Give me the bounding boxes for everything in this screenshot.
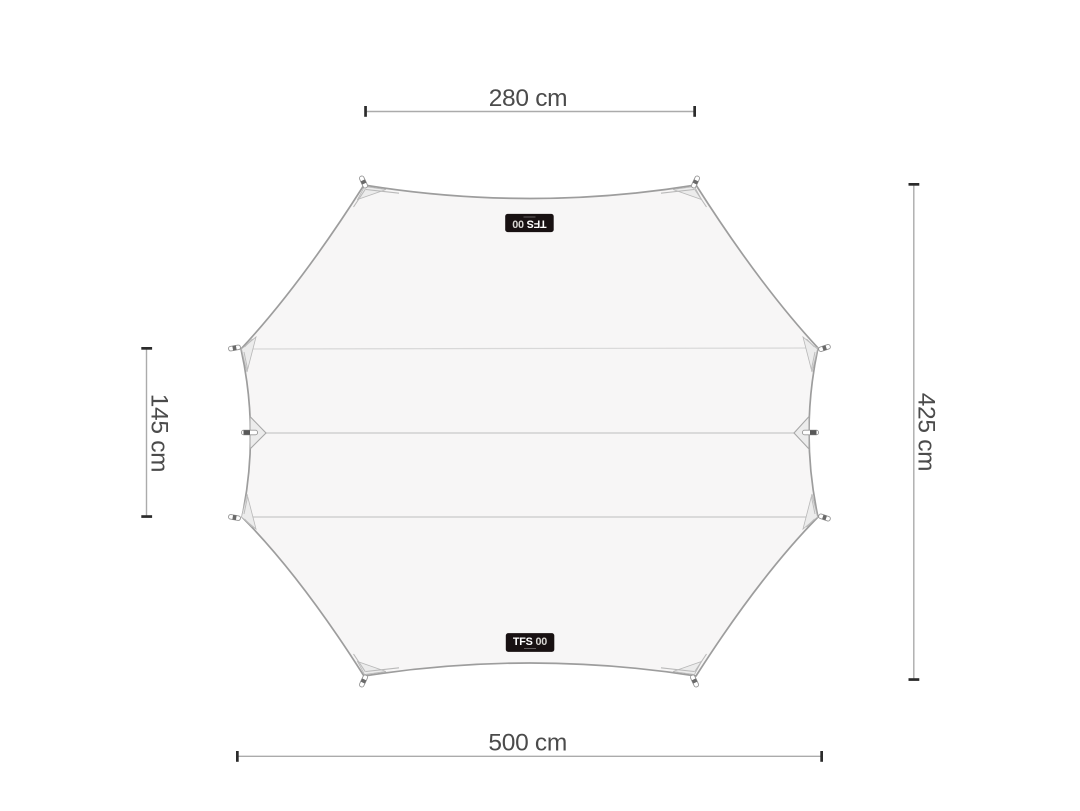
svg-text:425 cm: 425 cm <box>913 393 940 472</box>
svg-text:145 cm: 145 cm <box>146 394 173 473</box>
svg-text:TFS 00: TFS 00 <box>512 217 546 229</box>
svg-text:500 cm: 500 cm <box>488 730 567 757</box>
svg-text:280 cm: 280 cm <box>489 85 568 112</box>
svg-text:TFS 00: TFS 00 <box>513 636 547 648</box>
